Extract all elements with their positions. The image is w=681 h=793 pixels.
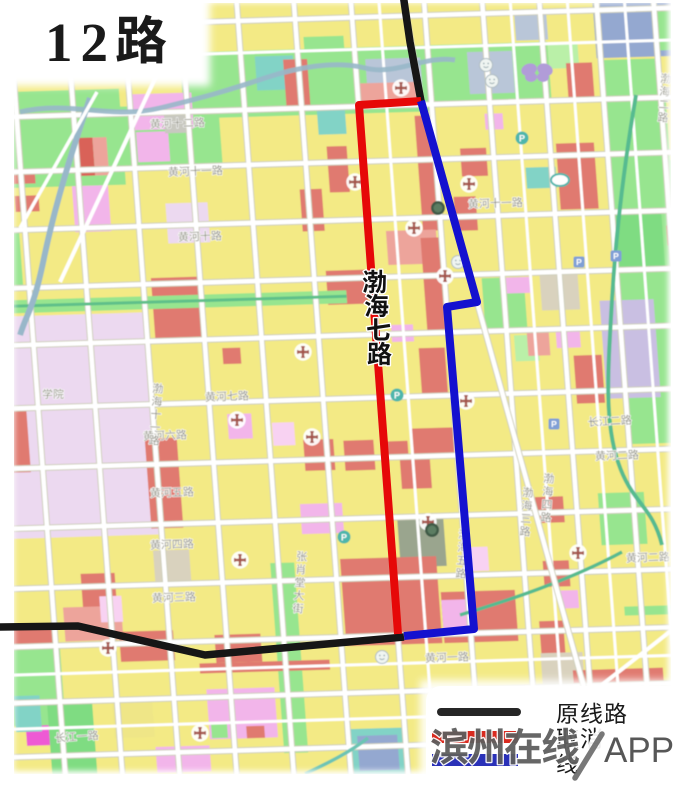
svg-text:P: P xyxy=(341,532,347,542)
svg-text:P: P xyxy=(613,251,619,261)
svg-text:APP: APP xyxy=(604,731,674,770)
svg-text:P: P xyxy=(519,133,525,143)
svg-text:P: P xyxy=(394,390,400,400)
svg-text:P: P xyxy=(576,257,582,267)
svg-text:12: 12 xyxy=(45,12,116,73)
svg-text:P: P xyxy=(551,419,557,429)
